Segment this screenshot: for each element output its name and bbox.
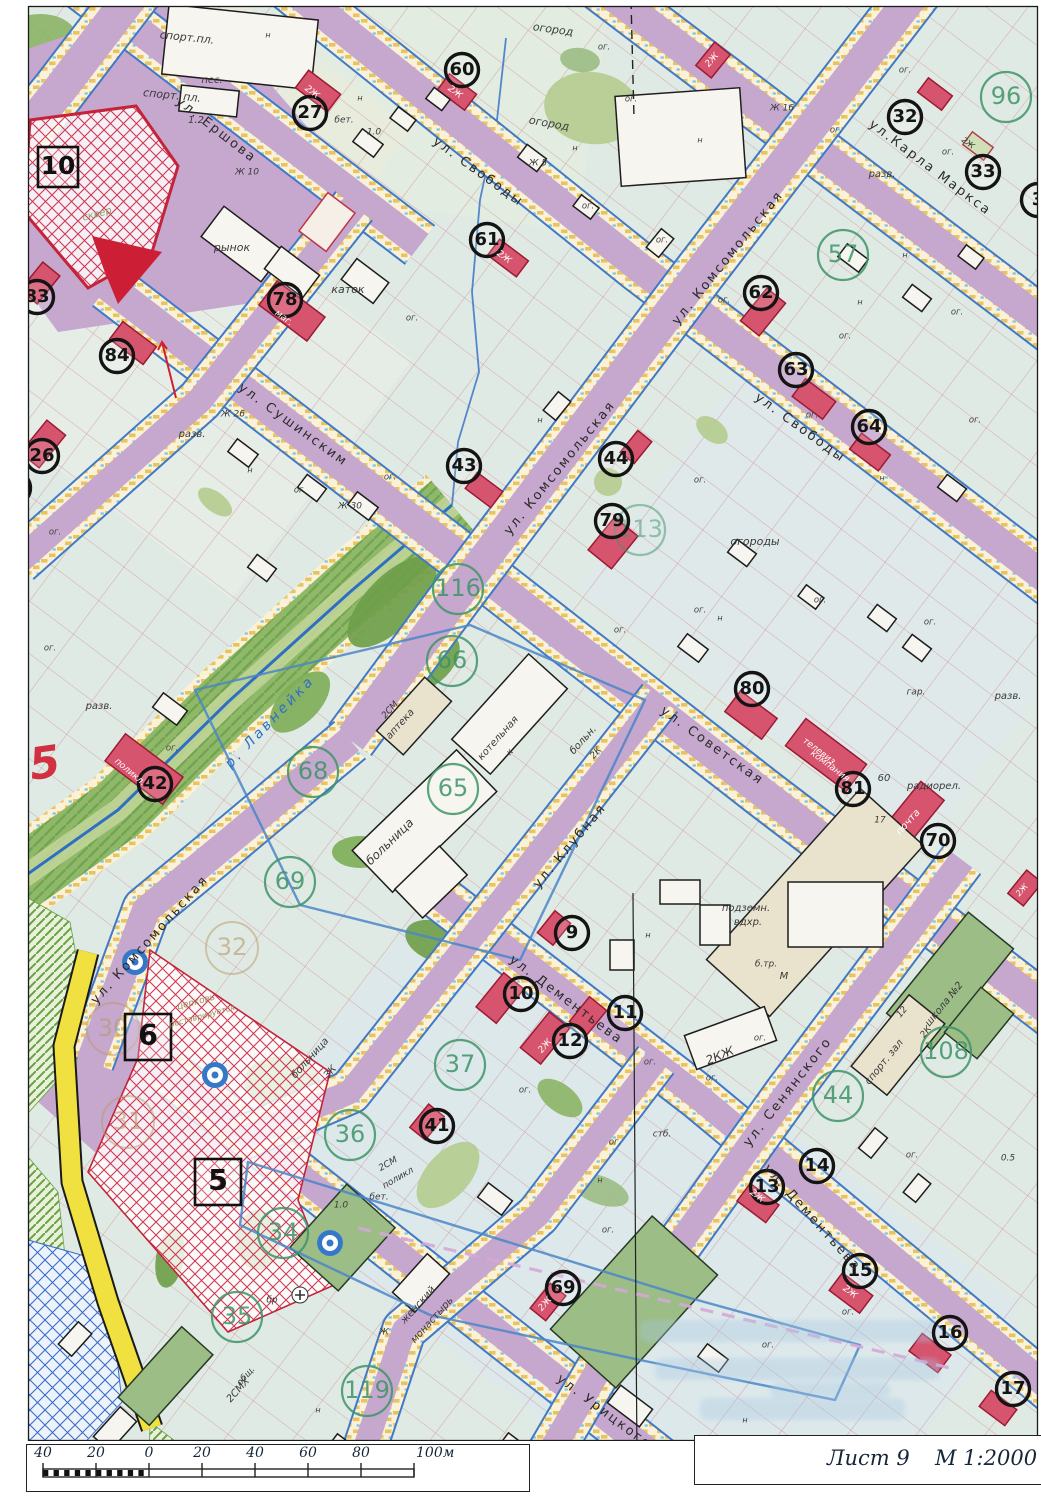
area-label: разв. [868,169,896,180]
area-label: н [645,931,650,940]
svg-text:64: 64 [856,416,881,437]
area-label: н [265,31,270,40]
marker-square-10: 10 [38,147,78,187]
marker-black-12: 12 [554,1025,587,1058]
scale-bar-svg: 4020020406080100м [27,1445,526,1488]
sheet-number: Лист 9 [827,1446,910,1470]
og-label: ог. [406,314,418,324]
og-label: ог. [598,43,610,53]
area-label: н [717,614,722,623]
og-label: ог. [294,486,306,496]
area-label: 60 [878,773,891,784]
svg-text:31: 31 [113,1107,144,1135]
svg-text:70: 70 [925,830,950,851]
area-label: н [597,1176,602,1185]
svg-text:35: 35 [222,1302,253,1330]
svg-text:10: 10 [41,151,76,180]
svg-text:32: 32 [892,106,917,127]
og-label: ог. [906,1151,918,1161]
svg-text:116: 116 [435,574,481,602]
og-label: ог. [942,148,954,158]
svg-text:9: 9 [566,922,579,943]
svg-text:6: 6 [138,1019,158,1052]
svg-text:62: 62 [748,282,773,303]
area-label: радиорел. [906,781,961,792]
marker-black-14: 14 [801,1150,834,1183]
marker-square-6: 6 [125,1014,171,1060]
marker-black-26: 26 [26,440,59,473]
scale-label: 20 [86,1445,105,1461]
area-label: б.тр. [755,960,777,970]
area-label: подземн. [722,903,770,914]
area-label: стб. [653,1130,672,1140]
area-label: разв. [178,429,206,440]
marker-black-33: 33 [967,156,1000,189]
og-label: ог. [609,1138,621,1148]
og-label: ог. [519,1086,531,1096]
svg-text:5: 5 [208,1164,228,1197]
sheet-info: Лист 9 М 1:2000 [694,1435,1041,1485]
svg-text:84: 84 [104,345,129,366]
area-label: Ж 5 [528,159,548,169]
scale-label: 20 [192,1445,211,1461]
og-label: ог. [694,476,706,486]
svg-text:44: 44 [823,1081,854,1109]
svg-text:78: 78 [272,289,297,310]
area-label: н [572,144,577,153]
og-label: ог. [44,644,56,654]
scale-label: 0 [145,1445,154,1461]
svg-text:10: 10 [508,983,533,1004]
area-label: 1.2 [188,115,204,126]
marker-black-78: 78 [269,284,302,317]
map-layers: 3031329657116666568693736343511944108113… [0,0,1041,1509]
svg-text:30: 30 [98,1014,129,1042]
svg-text:119: 119 [344,1376,390,1404]
og-label: ог. [384,473,396,483]
marker-black-63: 63 [780,354,813,387]
og-label: ог. [625,95,637,105]
og-label: ог. [969,416,981,426]
marker-black-41: 41 [421,1110,454,1143]
area-label: разв. [994,691,1022,702]
svg-text:69: 69 [550,1277,575,1298]
svg-text:60: 60 [449,59,474,80]
marker-black-79: 79 [596,505,629,538]
svg-text:63: 63 [783,359,808,380]
svg-text:61: 61 [474,229,499,250]
svg-text:32: 32 [217,933,248,961]
area-label: огороды [730,535,780,548]
og-label: ог. [839,332,851,342]
og-label: ог. [614,626,626,636]
svg-text:14: 14 [804,1155,829,1176]
marker-square-5: 5 [195,1159,241,1205]
scale-label: 80 [352,1445,370,1461]
og-label: ог. [582,202,594,212]
og-label: ог. [899,66,911,76]
og-label: ог. [830,126,842,136]
og-label: ог. [166,744,178,754]
area-label: н [315,1406,320,1415]
svg-text:37: 37 [445,1050,476,1078]
area-label: пес. [201,75,222,86]
area-label: Ж 10 [234,168,259,178]
svg-text:96: 96 [991,82,1022,110]
og-label: ог. [644,1058,656,1068]
well-icon [317,1230,343,1256]
marker-black-27: 27 [294,97,327,130]
map-scale: М 1:2000 [935,1446,1037,1470]
area-label: 17 [874,816,886,826]
area-label: бет. [369,1193,388,1203]
svg-text:44: 44 [603,448,628,469]
area-label: бет. [334,116,353,126]
og-label: ог. [656,236,668,246]
svg-text:17: 17 [1000,1378,1025,1399]
area-label: н [879,474,884,483]
area-label: н [357,94,362,103]
footer: 4020020406080100м Лист 9 М 1:2000 [0,1441,1041,1509]
marker-black-44: 44 [600,443,633,476]
area-label: М [780,971,789,982]
area-label: гар. [907,688,926,698]
og-label: ог. [924,618,936,628]
og-label: ог. [814,596,826,606]
svg-text:68: 68 [298,757,329,785]
well-icon [202,1062,228,1088]
og-label: ог. [706,1074,718,1084]
area-label: Ж 30 [337,502,362,512]
scale-bar: 4020020406080100м [26,1444,530,1492]
svg-text:79: 79 [599,510,624,531]
svg-text:41: 41 [424,1115,449,1136]
area-label: н [697,136,702,145]
area-label: Ж [378,1328,389,1338]
marker-black-9: 9 [556,917,589,950]
marker-black-62: 62 [745,277,778,310]
area-label: каток [331,283,365,296]
church-cross-icon [292,1287,308,1303]
marker-black-80: 80 [736,673,769,706]
area-label: разв. [85,701,113,712]
scale-label: 40 [245,1445,264,1461]
area-label: бр [266,1296,278,1306]
map-svg: 3031329657116666568693736343511944108113… [0,0,1041,1509]
area-label: 1.0 [334,1201,349,1211]
area-label: н [902,251,907,260]
area-label: н [247,466,252,475]
og-label: ог. [694,606,706,616]
og-label: ог. [49,528,61,538]
area-label: Ж 26 [220,410,245,420]
area-label: Ж 16 [769,104,794,114]
scale-label: 60 [299,1445,317,1461]
area-label: вдхр. [734,917,762,928]
map-canvas: 3031329657116666568693736343511944108113… [0,0,1041,1509]
og-label: ог. [762,1341,774,1351]
area-label: н [857,298,862,307]
marker-black-16: 16 [934,1317,967,1350]
svg-text:16: 16 [937,1322,962,1343]
marker-black-17: 17 [997,1373,1030,1406]
og-label: ог. [602,1226,614,1236]
svg-text:108: 108 [923,1037,969,1065]
marker-black-64: 64 [853,411,886,444]
area-label: н [537,416,542,425]
svg-text:36: 36 [335,1120,366,1148]
og-label: ог. [842,1308,854,1318]
svg-text:33: 33 [970,161,995,182]
svg-text:65: 65 [438,774,469,802]
svg-text:69: 69 [275,867,306,895]
svg-text:26: 26 [29,445,54,466]
map-sheet: 3031329657116666568693736343511944108113… [0,0,1041,1509]
svg-text:80: 80 [739,678,764,699]
svg-text:34: 34 [268,1218,299,1246]
scale-label: 100м [416,1445,454,1461]
scale-label: 40 [33,1445,52,1461]
svg-text:57: 57 [828,240,859,268]
svg-text:12: 12 [557,1030,582,1051]
marker-black-43: 43 [448,450,481,483]
og-label: ог. [718,296,730,306]
svg-text:11: 11 [612,1002,637,1023]
og-label: ог. [951,308,963,318]
svg-text:27: 27 [297,102,322,123]
marker-black-70: 70 [922,825,955,858]
marker-black-11: 11 [609,997,642,1030]
area-label: 1.0 [367,128,382,138]
svg-text:42: 42 [142,773,167,794]
marker-black-32: 32 [889,101,922,134]
marker-black-84: 84 [101,340,134,373]
svg-text:66: 66 [437,646,468,674]
area-label: рынок [213,241,251,254]
og-label: ог. [754,1034,766,1044]
area-label: 0.5 [1001,1154,1016,1164]
og-label: ог. [806,411,818,421]
marker-black-60: 60 [446,54,479,87]
svg-text:43: 43 [451,455,476,476]
area-label: н [742,1416,747,1425]
